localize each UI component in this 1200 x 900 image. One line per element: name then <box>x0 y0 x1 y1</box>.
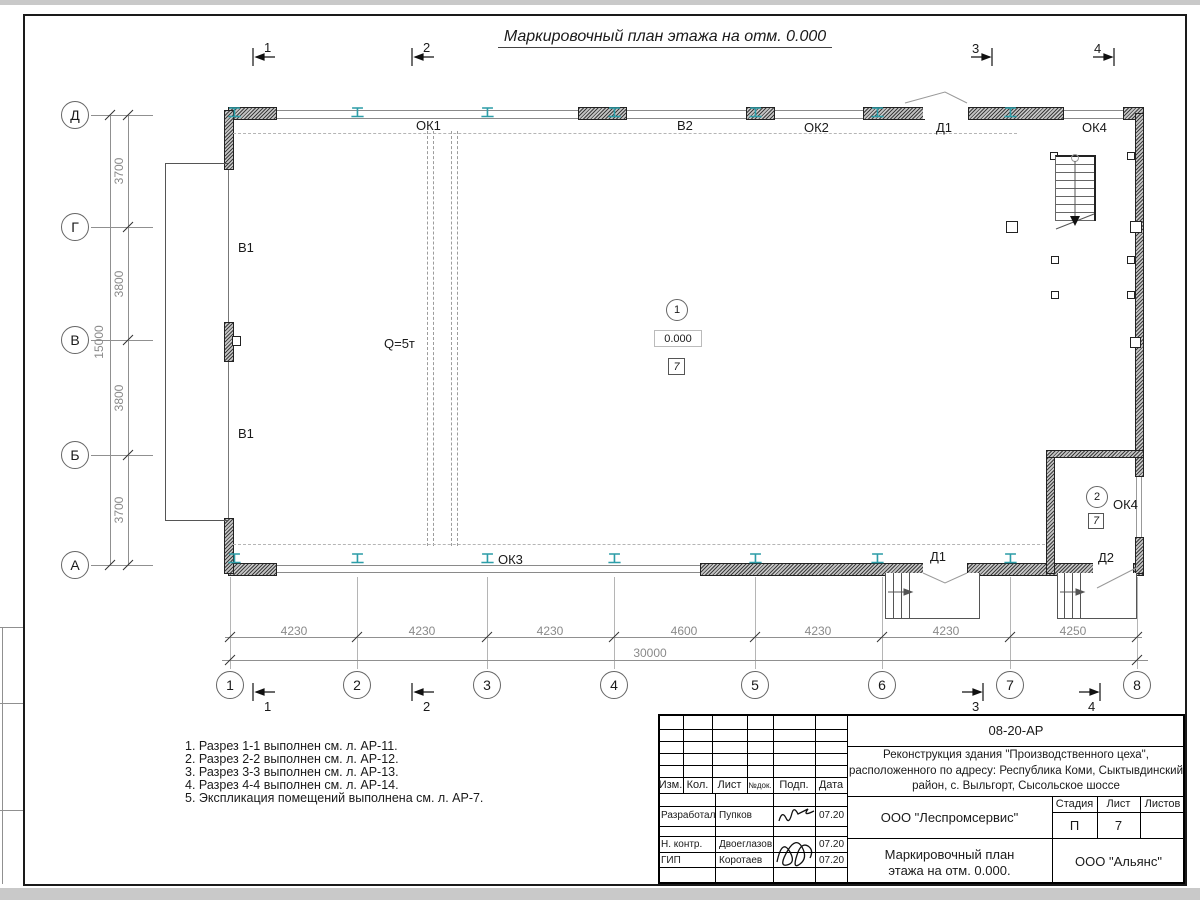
axis-marker: 8 <box>1123 671 1151 699</box>
dimension-label: 15000 <box>92 320 106 364</box>
crane-rail-dashed-line <box>457 131 458 546</box>
tb-line <box>658 836 847 837</box>
section-mark-3: 3 <box>972 41 979 56</box>
column-square <box>1130 221 1142 233</box>
axis-marker: В <box>61 326 89 354</box>
tb-signer-name: Двоеглазов <box>719 839 772 850</box>
section-mark-1: 1 <box>264 699 271 714</box>
axis-marker: 6 <box>868 671 896 699</box>
axis-marker: Г <box>61 213 89 241</box>
room-number-marker: 1 <box>666 299 688 321</box>
margin-line <box>0 627 23 628</box>
tb-stage-label: Стадия <box>1052 796 1097 812</box>
drawing-page: Маркировочный план этажа на отм. 0.000 工… <box>0 0 1200 900</box>
wall-right <box>1135 537 1144 574</box>
steel-column-icon: 工 <box>351 553 364 565</box>
tb-line <box>658 741 847 742</box>
dimension-label: 4250 <box>1051 624 1095 638</box>
tb-col-header: №док. <box>747 777 773 793</box>
note-item: 1. Разрез 1-1 выполнен см. л. АР-11. <box>185 740 483 753</box>
tb-col-header: Подп. <box>773 777 815 793</box>
window-label: ОК4 <box>1082 120 1107 135</box>
section-mark-2: 2 <box>423 699 430 714</box>
column-square <box>1130 337 1141 348</box>
tb-document-code: 08-20-АР <box>847 714 1185 746</box>
axis-marker: Д <box>61 101 89 129</box>
tb-line <box>847 746 1185 747</box>
extension-line <box>487 577 488 669</box>
crane-rail-dashed-line <box>433 131 434 546</box>
axis-marker: А <box>61 551 89 579</box>
extension-line <box>882 577 883 669</box>
annex-outline <box>165 163 228 164</box>
extension-line <box>614 577 615 669</box>
partition-wall <box>1046 450 1055 574</box>
entrance-porch <box>885 573 980 619</box>
steel-column-icon: 工 <box>481 107 494 119</box>
tb-signer-role: Разработал <box>661 810 715 821</box>
tb-col-header: Лист <box>712 777 747 793</box>
dimension-label: 4600 <box>662 624 706 638</box>
crane-rail-dashed-line <box>427 131 428 546</box>
tb-line <box>658 852 847 853</box>
tb-line <box>658 867 847 868</box>
steel-column-icon: 工 <box>871 107 884 119</box>
window-label: ОК3 <box>498 552 523 567</box>
steel-column-icon: 工 <box>481 553 494 565</box>
dimension-label: 4230 <box>924 624 968 638</box>
window-label: ОК4 <box>1113 497 1138 512</box>
dimension-line <box>128 115 129 565</box>
extension-line <box>1137 577 1138 669</box>
column-square <box>1006 221 1018 233</box>
column-square <box>1127 256 1135 264</box>
crane-beam-dashed-line <box>233 133 1017 134</box>
steel-column-icon: 工 <box>749 553 762 565</box>
drawing-title: Маркировочный план этажа на отм. 0.000 <box>415 28 915 46</box>
margin-line <box>0 703 23 704</box>
elevation-box: 0.000 <box>654 330 702 347</box>
tb-signer-role: ГИП <box>661 855 681 866</box>
extension-line <box>230 577 231 669</box>
gate-label: В2 <box>677 118 693 133</box>
tb-signer-date: 07.20 <box>819 839 844 850</box>
section-mark-4: 4 <box>1088 699 1095 714</box>
porch-step <box>1072 573 1073 618</box>
door-label: Д1 <box>930 549 946 564</box>
crane-capacity-label: Q=5т <box>384 336 415 351</box>
annex-outline <box>165 520 228 521</box>
axis-line <box>91 455 153 456</box>
steel-column-icon: 工 <box>608 107 621 119</box>
dimension-label: 3700 <box>112 488 126 532</box>
dimension-label: 4230 <box>272 624 316 638</box>
dimension-label: 4230 <box>528 624 572 638</box>
extension-line <box>1010 577 1011 669</box>
dimension-label: 3700 <box>112 149 126 193</box>
crane-beam-dashed-line <box>233 544 1045 545</box>
axis-marker: 2 <box>343 671 371 699</box>
section-mark-1: 1 <box>264 40 271 55</box>
axis-line <box>91 115 153 116</box>
column-square <box>1051 291 1059 299</box>
tb-line <box>658 729 847 730</box>
tb-customer-org: ООО "Альянс" <box>1052 838 1185 884</box>
tb-sheets-value <box>1140 812 1185 838</box>
wall-right <box>1135 113 1144 477</box>
axis-line <box>91 565 153 566</box>
section-mark-4: 4 <box>1094 41 1101 56</box>
door-opening-d1-top <box>923 106 968 119</box>
note-item: 5. Экспликация помещений выполнена см. л… <box>185 792 483 805</box>
axis-marker: Б <box>61 441 89 469</box>
section-mark-2: 2 <box>423 40 430 55</box>
margin-line <box>2 627 3 884</box>
tb-col-header: Дата <box>815 777 847 793</box>
window-label: ОК2 <box>804 120 829 135</box>
steel-column-icon: 工 <box>871 553 884 565</box>
dimension-label: 3800 <box>112 376 126 420</box>
tb-sheet-label: Лист <box>1097 796 1140 812</box>
partition-wall <box>1046 450 1144 458</box>
dimension-label: 4230 <box>796 624 840 638</box>
column-square <box>232 336 241 346</box>
tb-stage-value: П <box>1052 812 1097 838</box>
tb-sheet-title: Маркировочный план этажа на отм. 0.000. <box>847 847 1052 879</box>
tb-signer-name: Пупков <box>719 810 752 821</box>
dimension-label: 4230 <box>400 624 444 638</box>
tb-signer-date: 07.20 <box>819 855 844 866</box>
porch-step <box>893 573 894 618</box>
axis-marker: 5 <box>741 671 769 699</box>
porch-step <box>909 573 910 618</box>
note-item: 2. Разрез 2-2 выполнен см. л. АР-12. <box>185 753 483 766</box>
extension-line <box>755 577 756 669</box>
notes-list: 1. Разрез 1-1 выполнен см. л. АР-11. 2. … <box>185 740 483 805</box>
tb-line <box>658 826 847 827</box>
axis-line <box>91 227 153 228</box>
steel-column-icon: 工 <box>228 107 241 119</box>
room-type-box: 7 <box>1088 513 1104 529</box>
steel-column-icon: 工 <box>749 107 762 119</box>
dimension-label: 3800 <box>112 262 126 306</box>
section-mark-3: 3 <box>972 699 979 714</box>
entrance-porch <box>1057 573 1137 619</box>
tb-line <box>658 793 847 794</box>
tb-line <box>773 714 774 884</box>
steel-column-icon: 工 <box>351 107 364 119</box>
tb-sheet-value: 7 <box>1097 812 1140 838</box>
column-square <box>1051 256 1059 264</box>
margin-line <box>0 810 23 811</box>
gate-label: В1 <box>238 426 254 441</box>
tb-col-header: Кол. <box>683 777 712 793</box>
note-item: 3. Разрез 3-3 выполнен см. л. АР-13. <box>185 766 483 779</box>
steel-column-icon: 工 <box>228 553 241 565</box>
staircase <box>1055 155 1096 221</box>
tb-signer-date: 07.20 <box>819 810 844 821</box>
tb-col-header: Изм. <box>658 777 683 793</box>
tb-signer-role: Н. контр. <box>661 839 702 850</box>
tb-line <box>658 753 847 754</box>
porch-step <box>1064 573 1065 618</box>
annex-outline <box>165 163 166 520</box>
tb-sheets-label: Листов <box>1140 796 1185 812</box>
steel-column-icon: 工 <box>1004 553 1017 565</box>
steel-column-icon: 工 <box>1004 107 1017 119</box>
steel-column-icon: 工 <box>608 553 621 565</box>
window-label: ОК1 <box>416 118 441 133</box>
axis-marker: 3 <box>473 671 501 699</box>
dimension-line <box>222 660 1148 661</box>
axis-marker: 4 <box>600 671 628 699</box>
room-type-box: 7 <box>668 358 685 375</box>
extension-line <box>357 577 358 669</box>
porch-step <box>901 573 902 618</box>
axis-marker: 1 <box>216 671 244 699</box>
dimension-line <box>110 115 111 565</box>
porch-step <box>1080 573 1081 618</box>
dimension-label: 30000 <box>620 646 680 660</box>
room-number-marker: 2 <box>1086 486 1108 508</box>
tb-line <box>815 714 816 884</box>
gate-label: В1 <box>238 240 254 255</box>
tb-designer-org: ООО "Леспромсервис" <box>847 796 1052 838</box>
column-square <box>1127 291 1135 299</box>
column-square <box>1127 152 1135 160</box>
door-label: Д1 <box>936 120 952 135</box>
door-label: Д2 <box>1098 550 1114 565</box>
tb-line <box>658 806 847 807</box>
note-item: 4. Разрез 4-4 выполнен см. л. АР-14. <box>185 779 483 792</box>
tb-signer-name: Коротаев <box>719 855 762 866</box>
crane-rail-dashed-line <box>451 131 452 546</box>
axis-marker: 7 <box>996 671 1024 699</box>
tb-project-name: Реконструкция здания "Производственного … <box>847 748 1185 796</box>
tb-line <box>658 765 847 766</box>
